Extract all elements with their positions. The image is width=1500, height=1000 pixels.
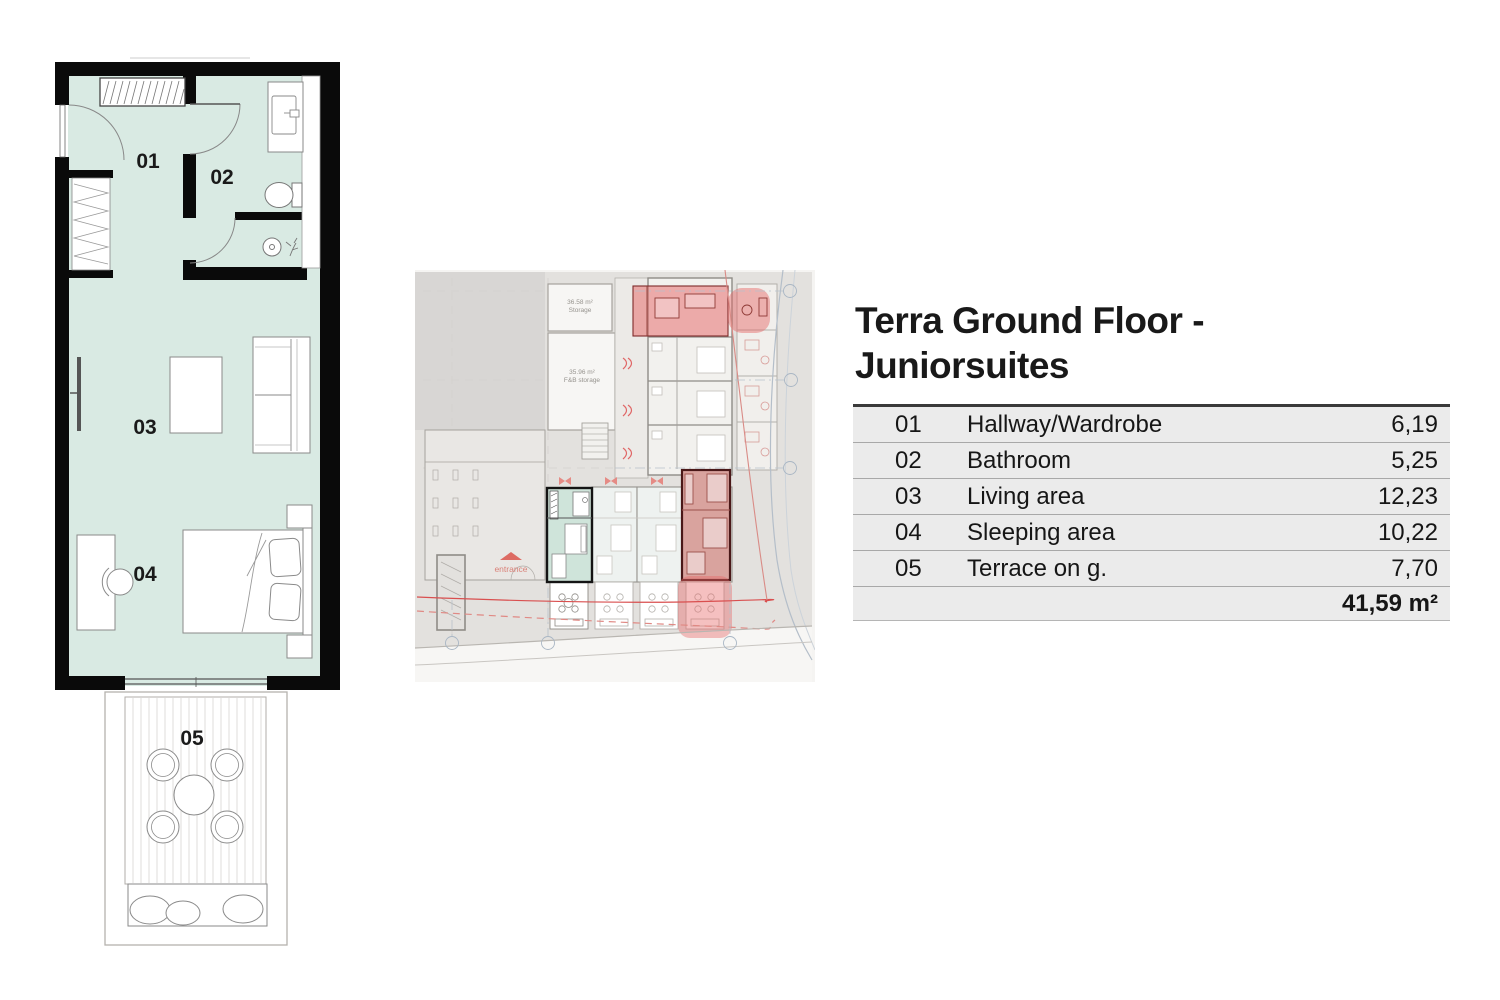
room-number: 04 xyxy=(853,519,967,547)
room-number: 03 xyxy=(853,483,967,511)
fb-storage-name-label: F&B storage xyxy=(564,377,601,384)
table-total-row: 41,59 m² xyxy=(853,587,1450,620)
storage-name-label: Storage xyxy=(569,307,592,314)
wall-niche xyxy=(302,76,320,268)
toilet xyxy=(265,183,302,208)
room-number: 02 xyxy=(853,447,967,475)
total-area: 41,59 m² xyxy=(1342,590,1438,618)
room-03-label: 03 xyxy=(133,416,156,439)
area-table: 01 Hallway/Wardrobe 6,19 02 Bathroom 5,2… xyxy=(853,404,1450,621)
stairs xyxy=(582,423,608,459)
storage-area-label: 36.58 m² xyxy=(567,299,593,306)
living-table xyxy=(170,357,222,433)
highlighted-unit-green xyxy=(547,488,592,582)
pillow xyxy=(269,583,301,621)
page-title: Terra Ground Floor - Juniorsuites xyxy=(855,298,1455,388)
site-overview-plan: 36.58 m² Storage 35.96 m² F&B storage xyxy=(415,270,815,682)
nightstand-top xyxy=(287,505,312,528)
room-name: Hallway/Wardrobe xyxy=(967,411,1308,439)
hallway-wardrobe xyxy=(100,78,185,106)
room-02-label: 02 xyxy=(210,166,233,189)
table-row: 02 Bathroom 5,25 xyxy=(853,443,1450,479)
highlighted-unit-red xyxy=(682,470,730,580)
fb-storage-area-label: 35.96 m² xyxy=(569,369,595,376)
room-05-label: 05 xyxy=(180,727,204,750)
sofa xyxy=(253,337,310,453)
room-area: 6,19 xyxy=(1308,411,1450,439)
room-04-label: 04 xyxy=(133,563,157,586)
pillow xyxy=(269,538,302,577)
page: 01 02 03 04 05 36.58 m² Storage 35.96 m² xyxy=(0,0,1500,1000)
room-area: 5,25 xyxy=(1308,447,1450,475)
sink xyxy=(268,82,303,152)
terrace-table xyxy=(174,775,214,815)
room-area: 7,70 xyxy=(1308,555,1450,583)
page-title-line2: Juniorsuites xyxy=(855,343,1455,388)
table-row: 01 Hallway/Wardrobe 6,19 xyxy=(853,407,1450,443)
table-row: 03 Living area 12,23 xyxy=(853,479,1450,515)
room-name: Sleeping area xyxy=(967,519,1308,547)
room-number: 01 xyxy=(853,411,967,439)
room-01-label: 01 xyxy=(136,150,160,173)
room-name: Bathroom xyxy=(967,447,1308,475)
red-terrace-highlight xyxy=(678,576,732,638)
neighbor-block xyxy=(415,272,545,430)
table-row: 05 Terrace on g. 7,70 xyxy=(853,551,1450,587)
unit-floor-plan: 01 02 03 04 05 xyxy=(40,50,360,960)
entrance-label: entrance xyxy=(494,564,527,574)
table-row: 04 Sleeping area 10,22 xyxy=(853,515,1450,551)
storage-rooms: 36.58 m² Storage 35.96 m² F&B storage xyxy=(548,284,615,430)
room-number: 05 xyxy=(853,555,967,583)
service-strip xyxy=(437,555,465,630)
room-area: 10,22 xyxy=(1308,519,1450,547)
page-title-line1: Terra Ground Floor - xyxy=(855,298,1455,343)
top-red-zone xyxy=(633,286,770,336)
closet-shelves xyxy=(72,178,110,270)
room-name: Terrace on g. xyxy=(967,555,1308,583)
room-name: Living area xyxy=(967,483,1308,511)
nightstand-bottom xyxy=(287,635,312,658)
room-area: 12,23 xyxy=(1308,483,1450,511)
